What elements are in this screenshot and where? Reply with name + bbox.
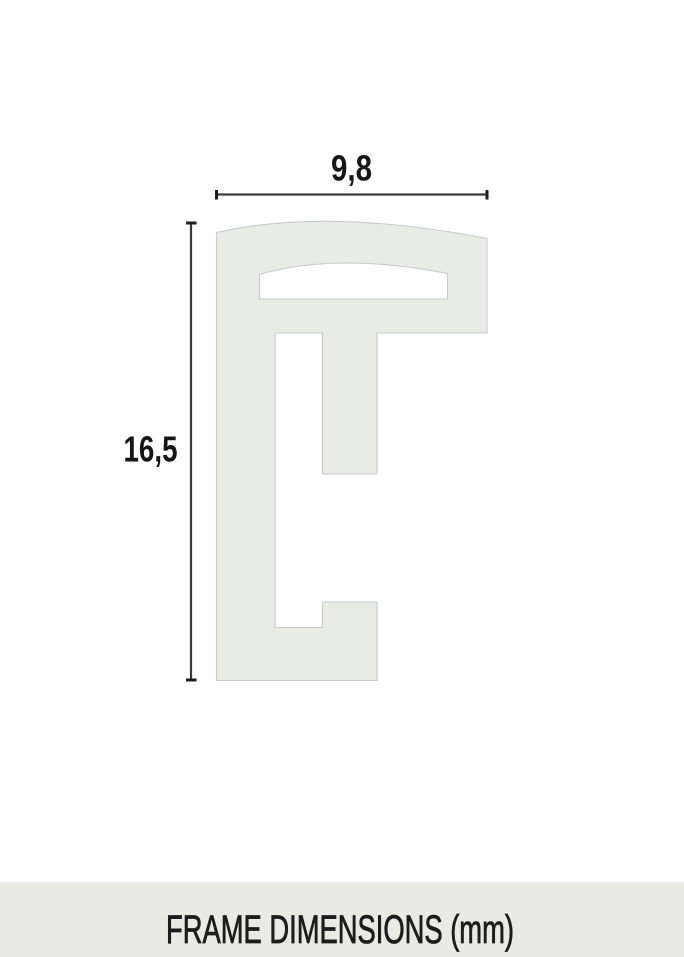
svg-text:16,5: 16,5 [124,429,178,470]
svg-text:FRAME DIMENSIONS (mm): FRAME DIMENSIONS (mm) [166,908,514,952]
svg-text:9,8: 9,8 [331,148,372,189]
